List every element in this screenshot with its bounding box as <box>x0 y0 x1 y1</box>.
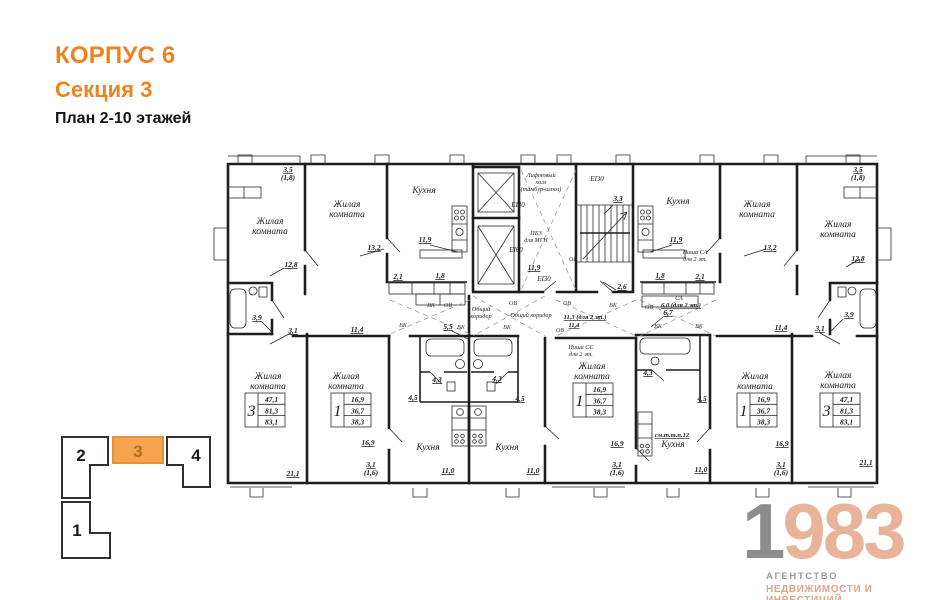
utility-label: ВК <box>427 303 436 309</box>
dim: 16,9 <box>361 438 374 447</box>
room-label: комната <box>328 382 364 392</box>
utility-label: ОВ <box>569 257 577 263</box>
area-value: 81,3 <box>265 406 278 415</box>
dim: 4,5 <box>696 394 707 403</box>
room-label: комната <box>737 382 773 392</box>
dim: (1,8) <box>851 173 866 182</box>
room-label: Кухня <box>665 197 689 207</box>
corridor-label: Общий коридор <box>510 312 551 319</box>
fire-rating: EI30 <box>510 201 525 209</box>
room-label: Кухня <box>494 443 518 453</box>
utility-label: ВК <box>399 323 408 329</box>
room-label: Жилая <box>256 217 284 227</box>
dim: 11,4 <box>351 325 364 334</box>
dim: 16,9 <box>775 439 788 448</box>
dim: 3,9 <box>251 313 262 322</box>
bathtub <box>426 339 464 356</box>
dim: 11,4 <box>568 322 580 329</box>
sa-label: СА <box>675 295 683 302</box>
dim: 11,9 <box>528 263 541 272</box>
room-count: 1 <box>576 393 584 410</box>
room-count: 3 <box>247 403 256 420</box>
elevator-cars <box>478 173 514 284</box>
dim: 5,5 <box>443 322 453 331</box>
lift-hall-label: Лифтовый <box>525 172 556 179</box>
room-count: 3 <box>822 403 831 420</box>
dim: 3,1 <box>287 326 297 335</box>
floor-plan-page: КОРПУС 6 Секция 3 План 2-10 этажей <box>0 0 941 600</box>
area-value: 38,3 <box>350 418 364 427</box>
apartment-table-1room: 1 16,9 36,7 38,3 <box>573 383 613 417</box>
room-label: Жилая <box>333 200 361 210</box>
section-2-number: 2 <box>76 446 85 465</box>
room-label: комната <box>820 230 856 240</box>
apartment-table-1room: 1 16,9 36,7 38,3 <box>737 393 777 427</box>
room-count: 1 <box>740 403 748 420</box>
room-label: комната <box>739 210 775 220</box>
dim: 4,3 <box>642 368 653 377</box>
dim: 2,1 <box>392 272 402 281</box>
room-label: Кухня <box>411 186 435 196</box>
bathtub <box>640 338 690 354</box>
room-count: 1 <box>334 403 342 420</box>
dim: 16,9 <box>610 439 623 448</box>
dim: 21,1 <box>285 469 299 478</box>
dim: (1,6) <box>610 468 625 477</box>
dim: 3,1 <box>814 324 824 333</box>
niche-label: для 2 эт. <box>569 351 593 358</box>
agency-logo: 1983 АГЕНТСТВО НЕДВИЖИМОСТИ И ИНВЕСТИЦИЙ <box>742 492 932 600</box>
fixtures <box>214 155 891 497</box>
niche-label: Ниша СА <box>682 249 708 256</box>
utility-label: ВК <box>609 303 618 309</box>
area-value: 36,7 <box>350 406 364 415</box>
dim: 12,8 <box>284 260 297 269</box>
corridor-label: Общий <box>472 306 491 313</box>
room-label: комната <box>329 210 365 220</box>
area-value: 47,1 <box>839 395 853 404</box>
section-4-number: 4 <box>191 446 201 465</box>
apartment-table-3room: 3 47,1 81,3 83,1 <box>820 393 860 427</box>
section-1-shape[interactable] <box>62 502 110 558</box>
logo-digit-1: 1 <box>742 487 782 575</box>
area-value: 38,3 <box>592 408 606 417</box>
area-value: 16,9 <box>351 395 364 404</box>
dim: 11,0 <box>442 466 455 475</box>
lift-hall-label: холл <box>535 179 547 186</box>
bathtub <box>230 289 246 328</box>
logo-subtitle-2: НЕДВИЖИМОСТИ И ИНВЕСТИЦИЙ <box>766 584 932 600</box>
utility-label: ОВ <box>556 328 564 334</box>
dim: 1,8 <box>655 271 665 280</box>
dim: 11,3 (для 2 эт.) <box>564 314 607 321</box>
dim: 4,3 <box>431 375 442 384</box>
dim: 11,9 <box>419 235 432 244</box>
room-label: Кухня <box>660 440 684 450</box>
dim: (1,8) <box>281 173 296 182</box>
lift-hall-label: (тамбур-шлюз) <box>521 186 562 193</box>
utility-label: ВК <box>503 325 512 331</box>
bathtub <box>860 289 876 328</box>
room-label: Жилая <box>254 372 282 382</box>
dim: 2,6 <box>616 282 627 291</box>
fire-rating: EI60 <box>508 246 523 254</box>
area-value: 83,1 <box>265 418 278 427</box>
area-value: 83,1 <box>840 418 853 427</box>
logo-digits-983: 983 <box>782 487 903 575</box>
dim: 12,8 <box>851 254 864 263</box>
dim: 11,9 <box>670 235 683 244</box>
utility-label: ВК <box>457 325 466 331</box>
safe-zone-label: для МГН <box>524 237 548 244</box>
room-label: Кухня <box>415 443 439 453</box>
area-value: 47,1 <box>264 395 278 404</box>
dim: 11,0 <box>527 466 540 475</box>
room-label: комната <box>250 382 286 392</box>
corridor-label: коридор <box>470 313 491 320</box>
room-label: Жилая <box>741 372 769 382</box>
room-label: Жилая <box>743 200 771 210</box>
room-label: комната <box>820 381 856 391</box>
area-value: 36,7 <box>756 406 770 415</box>
utility-label: ОВ <box>509 301 517 307</box>
area-value: 16,9 <box>593 385 606 394</box>
utility-label: ВК <box>654 324 663 330</box>
dim: 11,4 <box>775 323 788 332</box>
area-value: 16,9 <box>757 395 770 404</box>
dim: 1,8 <box>435 271 445 280</box>
section-key-map: 2 3 4 1 <box>62 437 210 558</box>
room-label: Жилая <box>578 362 606 372</box>
fire-rating: EI30 <box>536 275 551 283</box>
dim: 4,5 <box>407 393 418 402</box>
room-label: Жилая <box>824 220 852 230</box>
apartment-table-3room: 3 47,1 81,3 83,1 <box>245 393 285 427</box>
dim: 2,1 <box>694 272 704 281</box>
room-label: Жилая <box>332 372 360 382</box>
dim: 4,3 <box>491 374 502 383</box>
dim: 13,2 <box>763 243 776 252</box>
dim: 13,2 <box>367 243 380 252</box>
safe-zone-label: ПБЗ <box>529 230 541 237</box>
section-1-number: 1 <box>72 521 81 540</box>
room-label: комната <box>252 227 288 237</box>
note-label: см.т.т.п.12 <box>655 432 690 439</box>
area-value: 38,3 <box>756 418 770 427</box>
area-value: 81,3 <box>840 406 853 415</box>
dim: 11,0 <box>695 465 708 474</box>
utility-label: ОВ <box>444 303 452 309</box>
dim: 3,3 <box>612 194 623 203</box>
section-4-shape[interactable] <box>167 437 210 487</box>
niche-label: Ниша СС <box>567 344 594 351</box>
utility-label: ОВ <box>563 301 571 307</box>
utility-label: ОВ <box>645 305 653 311</box>
dim: (1,6) <box>364 468 379 477</box>
dim: 3,9 <box>843 310 854 319</box>
bathtub <box>474 339 512 356</box>
apartment-table-1room: 1 16,9 36,7 38,3 <box>331 393 371 427</box>
room-label: Жилая <box>824 371 852 381</box>
logo-year: 1983 <box>742 492 932 570</box>
fire-rating: EI30 <box>589 175 604 183</box>
niche-label: для 2 эт. <box>683 256 707 263</box>
dim: 4,5 <box>514 394 525 403</box>
room-label: комната <box>574 372 610 382</box>
dim: (1,6) <box>774 468 789 477</box>
section-3-number: 3 <box>133 442 142 461</box>
utility-label: ВК <box>695 324 704 330</box>
dim: 21,1 <box>858 458 872 467</box>
dim: 6,7 <box>663 308 673 317</box>
area-value: 36,7 <box>592 396 606 405</box>
